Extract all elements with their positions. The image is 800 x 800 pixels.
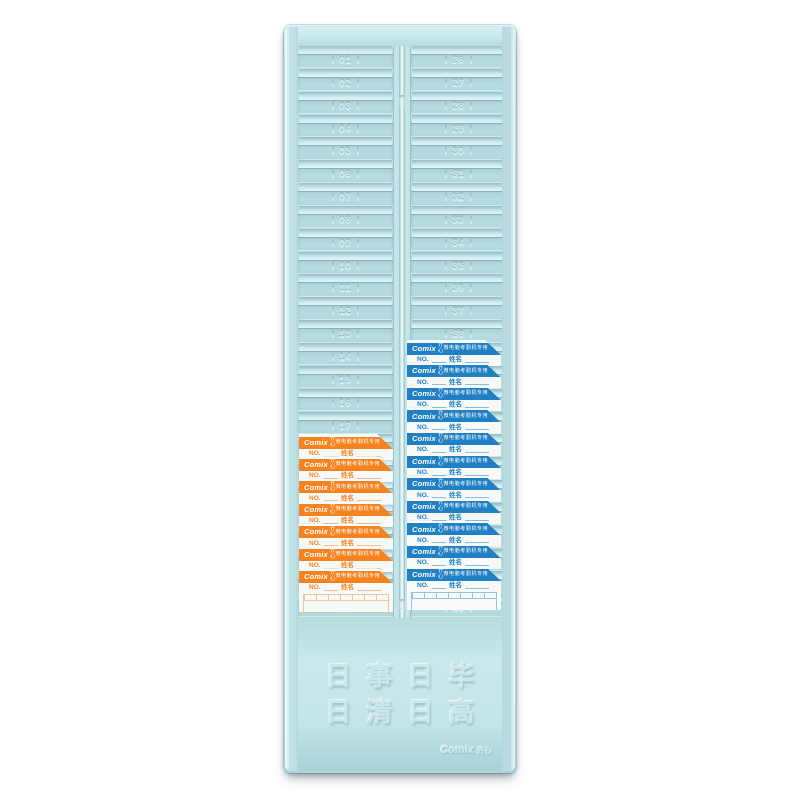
card-slot: 10: [298, 252, 393, 275]
card-slot: 41: [411, 389, 506, 412]
slot-number: 38: [411, 329, 506, 340]
embossed-slogan-line1: 日事日毕: [286, 663, 514, 690]
card-slot: 09: [298, 229, 393, 252]
card-slot: 19: [298, 457, 393, 480]
slot-number: 09: [298, 238, 393, 249]
card-slot: 11: [298, 274, 393, 297]
mount-hole-bottom: [400, 599, 405, 610]
center-rail: [393, 46, 411, 618]
card-slot: 43: [411, 434, 506, 457]
card-slot: 22: [298, 526, 393, 549]
card-slot: 23: [298, 549, 393, 572]
slot-column-right: 26 27 28 29 30 31 32 33 34 35 36 37 38 3…: [411, 46, 506, 617]
slot-number: 41: [411, 398, 506, 409]
slot-column-left: 01 02 03 04 05 06 07 08 09 10 11 12 13 1…: [298, 46, 393, 617]
slot-number: 11: [298, 283, 393, 294]
card-slot: 28: [411, 92, 506, 115]
slot-number: 47: [411, 535, 506, 546]
card-slot: 48: [411, 549, 506, 572]
card-slot: 03: [298, 92, 393, 115]
slot-number: 24: [298, 580, 393, 591]
slot-number: 19: [298, 466, 393, 477]
slot-number: 50: [411, 603, 506, 614]
slot-number: 27: [411, 78, 506, 89]
slot-number: 30: [411, 146, 506, 157]
slot-number: 05: [298, 146, 393, 157]
card-slot: 33: [411, 206, 506, 229]
slot-number: 37: [411, 306, 506, 317]
slot-number: 03: [298, 101, 393, 112]
slot-number: 02: [298, 78, 393, 89]
slot-number: 44: [411, 466, 506, 477]
card-slot: 05: [298, 137, 393, 160]
card-slot: 45: [411, 480, 506, 503]
card-slot: 30: [411, 137, 506, 160]
card-slot: 44: [411, 457, 506, 480]
slot-number: 26: [411, 55, 506, 66]
card-slot: 24: [298, 571, 393, 594]
slot-number: 46: [411, 512, 506, 523]
slot-number: 49: [411, 580, 506, 591]
card-slot: 39: [411, 343, 506, 366]
card-slot: 04: [298, 115, 393, 138]
card-slot: 46: [411, 503, 506, 526]
card-slot: 06: [298, 160, 393, 183]
card-slot: 08: [298, 206, 393, 229]
card-slot: 49: [411, 571, 506, 594]
card-slot: 18: [298, 434, 393, 457]
slot-number: 45: [411, 489, 506, 500]
slot-number: 28: [411, 101, 506, 112]
bottom-panel: 日事日毕 日清日高 Comix齐心: [286, 617, 514, 771]
brand-logo-text: Comix: [440, 744, 474, 756]
card-slot: 15: [298, 366, 393, 389]
card-slot: 16: [298, 389, 393, 412]
slot-number: 07: [298, 192, 393, 203]
card-slot: 37: [411, 297, 506, 320]
card-slot: 27: [411, 69, 506, 92]
slot-number: 12: [298, 306, 393, 317]
card-slot: 50: [411, 594, 506, 617]
card-slot: 21: [298, 503, 393, 526]
card-slot: 40: [411, 366, 506, 389]
slot-number: 36: [411, 283, 506, 294]
slot-number: 13: [298, 329, 393, 340]
card-slot: 25: [298, 594, 393, 617]
card-slot: 13: [298, 320, 393, 343]
card-slot: 47: [411, 526, 506, 549]
card-slot: 14: [298, 343, 393, 366]
slot-number: 48: [411, 558, 506, 569]
slot-number: 10: [298, 261, 393, 272]
slot-number: 04: [298, 124, 393, 135]
card-slot: 36: [411, 274, 506, 297]
card-slot: 31: [411, 160, 506, 183]
slot-number: 34: [411, 238, 506, 249]
slot-number: 22: [298, 535, 393, 546]
embossed-brand-logo: Comix齐心: [440, 745, 492, 756]
slot-number: 39: [411, 352, 506, 363]
slot-number: 32: [411, 192, 506, 203]
rack-top-band: [286, 27, 514, 46]
card-slot: 02: [298, 69, 393, 92]
slot-number: 29: [411, 124, 506, 135]
slot-number: 16: [298, 398, 393, 409]
card-slot: 07: [298, 183, 393, 206]
slot-number: 33: [411, 215, 506, 226]
slot-number: 21: [298, 512, 393, 523]
slot-number: 31: [411, 169, 506, 180]
slot-number: 06: [298, 169, 393, 180]
slot-number: 08: [298, 215, 393, 226]
slot-number: 01: [298, 55, 393, 66]
card-slot: 17: [298, 412, 393, 435]
mount-hole-top: [400, 95, 405, 106]
card-slot: 20: [298, 480, 393, 503]
slot-number: 18: [298, 443, 393, 454]
card-slot: 32: [411, 183, 506, 206]
slot-number: 20: [298, 489, 393, 500]
slot-number: 25: [298, 603, 393, 614]
slot-number: 14: [298, 352, 393, 363]
card-slot: 42: [411, 412, 506, 435]
card-slot: 26: [411, 46, 506, 69]
slot-number: 43: [411, 443, 506, 454]
slot-number: 40: [411, 375, 506, 386]
embossed-slogan-line2: 日清日高: [286, 699, 514, 726]
card-slot: 34: [411, 229, 506, 252]
card-slot: 38: [411, 320, 506, 343]
product-photo: 01 02 03 04 05 06 07 08 09 10 11 12 13 1…: [0, 0, 800, 800]
slot-number: 17: [298, 421, 393, 432]
card-slot: 35: [411, 252, 506, 275]
card-slot: 29: [411, 115, 506, 138]
slot-number: 23: [298, 558, 393, 569]
brand-logo-cn: 齐心: [477, 746, 492, 755]
slot-number: 35: [411, 261, 506, 272]
rack-right-edge: [502, 27, 515, 771]
card-slot: 12: [298, 297, 393, 320]
time-card-rack: 01 02 03 04 05 06 07 08 09 10 11 12 13 1…: [284, 25, 516, 773]
slot-number: 15: [298, 375, 393, 386]
rack-left-edge: [285, 27, 298, 771]
card-slot: 01: [298, 46, 393, 69]
slot-number: 42: [411, 421, 506, 432]
